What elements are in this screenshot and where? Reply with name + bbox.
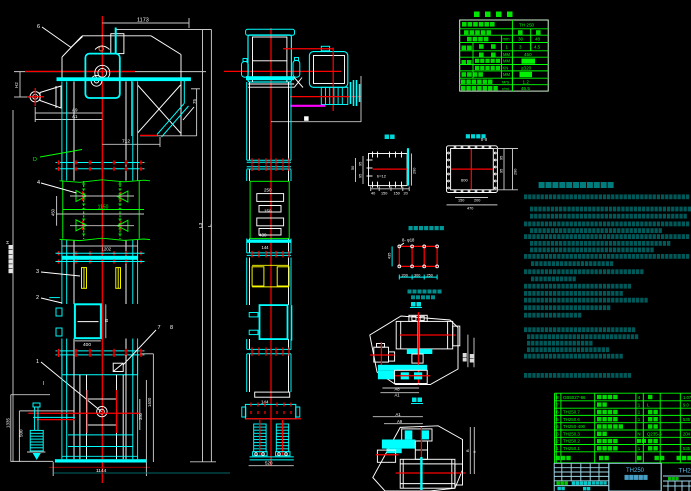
svg-text:50: 50 [351, 166, 355, 170]
svg-text:20: 20 [404, 192, 408, 196]
svg-text:48: 48 [535, 37, 541, 42]
svg-text:435: 435 [388, 253, 392, 259]
svg-text:MM: MM [503, 52, 510, 57]
svg-text:1335: 1335 [6, 417, 11, 428]
svg-text:144: 144 [262, 245, 270, 250]
svg-text:75: 75 [192, 98, 197, 104]
svg-text:535: 535 [683, 417, 691, 422]
svg-text:TH2: TH2 [679, 468, 691, 475]
svg-text:400: 400 [83, 342, 91, 348]
svg-text:A1: A1 [72, 114, 78, 119]
svg-text:150: 150 [458, 199, 464, 203]
svg-text:D: D [33, 157, 37, 163]
svg-text:1: 1 [638, 417, 641, 422]
svg-text:3: 3 [36, 269, 39, 275]
svg-text:430: 430 [259, 233, 267, 238]
svg-text:3: 3 [556, 431, 559, 436]
svg-text:1: 1 [506, 44, 509, 49]
svg-text:MM: MM [503, 72, 510, 77]
svg-text:150: 150 [394, 192, 400, 196]
svg-text:L: L [207, 224, 213, 227]
svg-text:2: 2 [556, 439, 559, 444]
svg-text:B: B [104, 319, 110, 322]
svg-text:150: 150 [264, 209, 272, 214]
svg-text:TH250.2: TH250.2 [563, 439, 580, 444]
svg-text:TH250: TH250 [626, 468, 645, 474]
svg-text:4.5: 4.5 [534, 44, 541, 49]
svg-text:MM: MM [503, 59, 510, 64]
svg-text:200: 200 [474, 199, 480, 203]
svg-text:40: 40 [371, 192, 375, 196]
svg-text:H2: H2 [14, 82, 19, 88]
svg-text:8-: 8- [402, 238, 406, 243]
svg-text:150: 150 [381, 192, 387, 196]
svg-text:7: 7 [158, 325, 161, 331]
svg-text:L3: L3 [198, 222, 204, 228]
svg-text:8: 8 [170, 325, 173, 331]
svg-text:5: 5 [556, 417, 559, 422]
svg-text:B: B [465, 449, 470, 452]
svg-text:520: 520 [265, 461, 273, 466]
svg-text:1: 1 [556, 446, 559, 451]
svg-text:1173: 1173 [137, 18, 149, 24]
svg-text:TH250-400: TH250-400 [563, 424, 586, 429]
svg-text:TH250.3: TH250.3 [563, 431, 580, 436]
svg-text:1: 1 [638, 402, 641, 407]
svg-text:46.5: 46.5 [521, 86, 530, 91]
svg-text:A8: A8 [395, 387, 401, 392]
svg-text:A9: A9 [397, 419, 403, 424]
svg-text:φ18: φ18 [407, 238, 415, 243]
svg-text:Q235-A: Q235-A [647, 431, 662, 436]
svg-text:mm: mm [503, 37, 510, 42]
svg-text:I: I [43, 381, 44, 387]
svg-text:1: 1 [36, 359, 39, 365]
svg-text:1400: 1400 [147, 397, 152, 407]
svg-text:4: 4 [556, 424, 559, 429]
svg-text:TH 250: TH 250 [519, 23, 535, 28]
svg-text:1.07: 1.07 [683, 395, 691, 400]
svg-text:95: 95 [500, 169, 504, 173]
svg-text:95: 95 [359, 174, 363, 178]
svg-text:9.0: 9.0 [683, 402, 689, 407]
svg-text:1: 1 [638, 446, 641, 451]
svg-text:II-II: II-II [481, 137, 487, 142]
svg-text:450: 450 [51, 208, 56, 216]
svg-text:r/mi: r/mi [502, 86, 509, 91]
svg-text:3: 3 [519, 44, 522, 49]
svg-text:450: 450 [524, 52, 532, 57]
svg-text:300: 300 [414, 273, 420, 277]
svg-text:250: 250 [264, 188, 272, 193]
svg-text:600: 600 [461, 178, 468, 183]
svg-text:470: 470 [467, 207, 473, 211]
svg-text:TH250.6: TH250.6 [563, 417, 580, 422]
svg-text:250: 250 [427, 273, 433, 277]
svg-text:7: 7 [556, 402, 559, 407]
svg-text:GB5027-86: GB5027-86 [563, 395, 586, 400]
svg-text:TH250.7: TH250.7 [563, 410, 580, 415]
svg-text:b=12: b=12 [377, 174, 387, 179]
svg-text:290: 290 [413, 168, 417, 174]
svg-text:95: 95 [500, 156, 504, 160]
svg-text:A1: A1 [395, 392, 401, 397]
svg-text:290: 290 [514, 169, 518, 175]
svg-text:8: 8 [556, 395, 559, 400]
svg-text:6: 6 [556, 410, 559, 415]
svg-text:1: 1 [638, 410, 641, 415]
svg-text:A9: A9 [72, 108, 78, 113]
svg-text:N: N [637, 431, 640, 436]
svg-text:4: 4 [638, 395, 641, 400]
svg-text:1202: 1202 [102, 247, 112, 252]
svg-text:30: 30 [518, 37, 524, 42]
svg-text:L: L [647, 402, 650, 407]
svg-text:KN: KN [503, 66, 509, 71]
svg-text:500: 500 [19, 429, 24, 437]
svg-text:TH250.1: TH250.1 [563, 446, 580, 451]
svg-text:535: 535 [683, 446, 691, 451]
svg-text:4: 4 [37, 180, 40, 186]
svg-text:204: 204 [683, 431, 691, 436]
svg-text:95: 95 [359, 162, 363, 166]
svg-text:H: H [5, 241, 10, 244]
svg-text:200: 200 [402, 273, 408, 277]
svg-text:6: 6 [37, 24, 40, 30]
svg-text:2: 2 [36, 295, 39, 301]
svg-text:1.2: 1.2 [523, 79, 530, 84]
svg-text:1150: 1150 [98, 204, 109, 210]
svg-text:≥320: ≥320 [521, 66, 532, 71]
svg-text:M/S: M/S [502, 79, 509, 84]
svg-text:A1: A1 [396, 412, 402, 417]
